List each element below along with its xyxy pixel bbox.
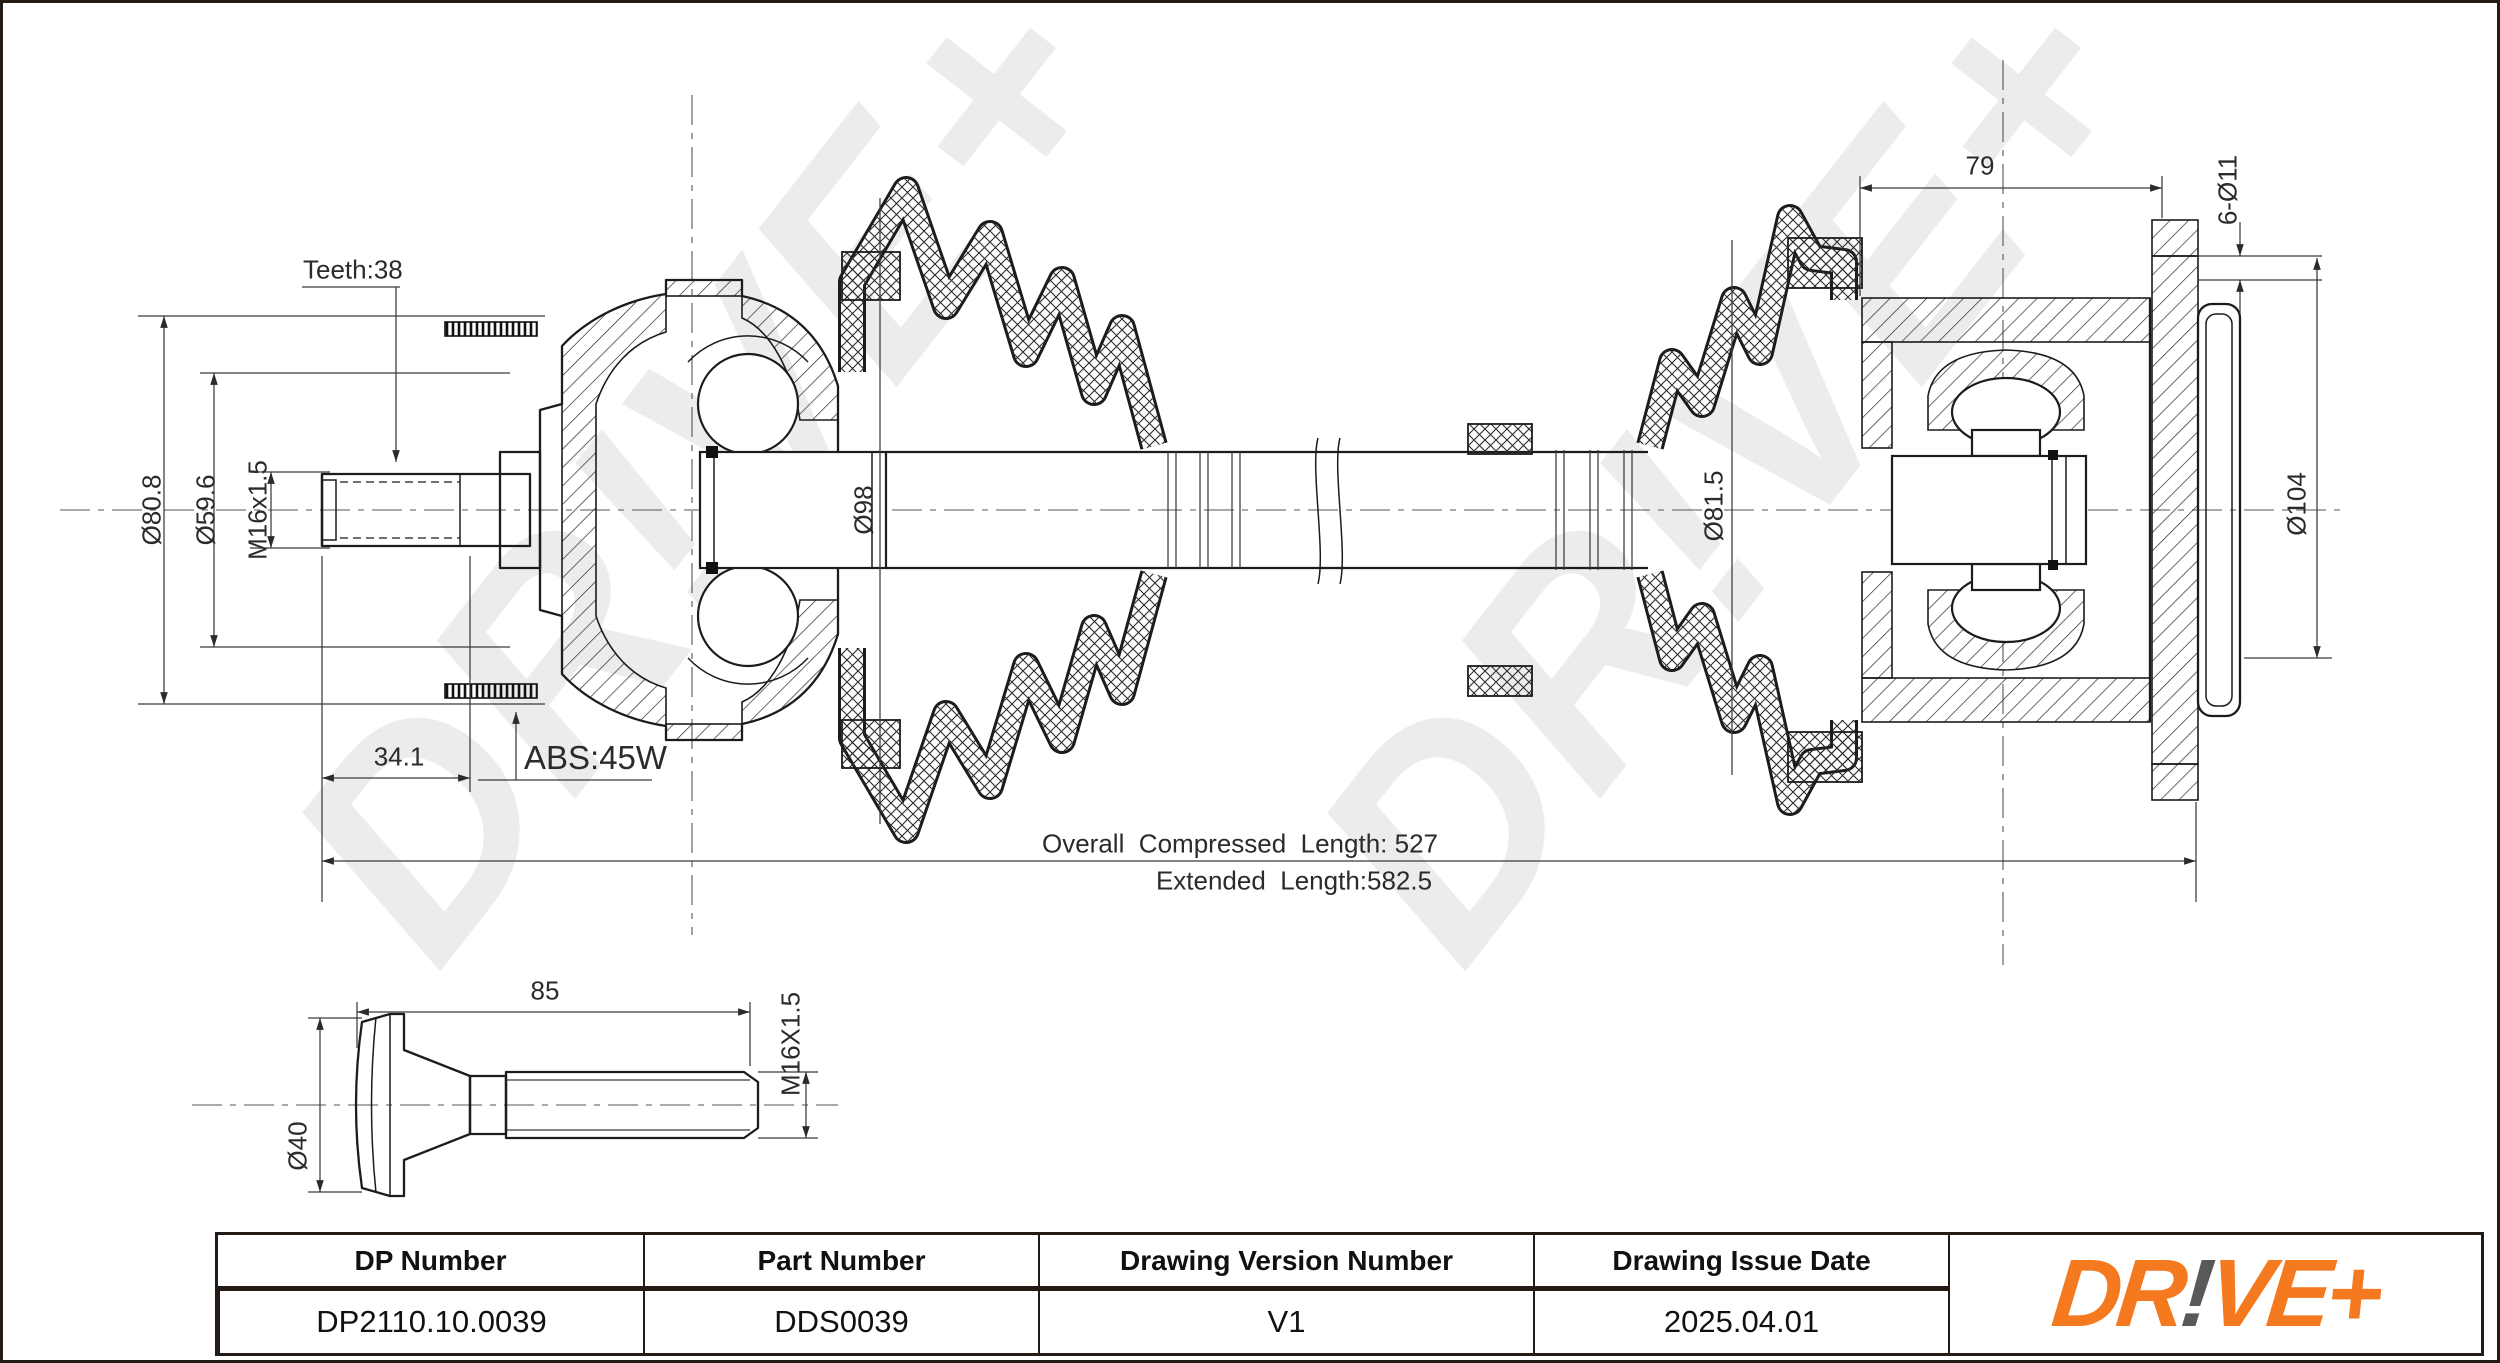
title-block: DP Number Part Number Drawing Version Nu… [215, 1232, 2484, 1356]
label-bolt-thread: M16X1.5 [776, 992, 807, 1096]
hub-bolt-detail [308, 1002, 818, 1196]
value-issue-date: 2025.04.01 [1533, 1291, 1948, 1353]
label-dia-59-6: Ø59.6 [191, 475, 222, 546]
label-bolt-85: 85 [531, 976, 560, 1007]
header-part-number: Part Number [643, 1235, 1038, 1291]
brand-logo: DR!VE+ [1948, 1235, 2481, 1353]
header-dp-number: DP Number [218, 1235, 643, 1291]
label-34-1: 34.1 [374, 742, 425, 773]
axle-shaft [886, 438, 1648, 584]
label-bolt-holes: 6-Ø11 [2213, 155, 2244, 225]
axle-technical-drawing [0, 0, 2500, 1363]
boot-clamp [1468, 424, 1532, 454]
boot-clamp [1468, 666, 1532, 696]
label-dia-81-5: Ø81.5 [1699, 471, 1730, 542]
label-compressed-length: Overall Compressed Length: 527 [1042, 829, 1438, 860]
value-part-number: DDS0039 [643, 1291, 1038, 1353]
drawing-sheet: DR!VE+ DR!VE+ [0, 0, 2500, 1363]
label-thread-bore: M16x1.5 [243, 460, 274, 560]
label-teeth: Teeth:38 [303, 255, 403, 286]
value-dp-number: DP2110.10.0039 [218, 1291, 643, 1353]
label-dia-98: Ø98 [849, 485, 880, 534]
label-extended-length: Extended Length:582.5 [1156, 866, 1432, 897]
inner-cv-joint [1862, 220, 2240, 800]
value-drawing-version: V1 [1038, 1291, 1533, 1353]
header-issue-date: Drawing Issue Date [1533, 1235, 1948, 1291]
header-drawing-version: Drawing Version Number [1038, 1235, 1533, 1291]
label-dia-104: Ø104 [2282, 472, 2313, 536]
driveplus-logo: DR!VE+ [2048, 1246, 2383, 1342]
label-79: 79 [1966, 151, 1995, 182]
label-abs-ring: ABS:45W [524, 739, 667, 777]
label-dia-80-8: Ø80.8 [137, 475, 168, 546]
label-bolt-head-dia: Ø40 [283, 1121, 314, 1170]
